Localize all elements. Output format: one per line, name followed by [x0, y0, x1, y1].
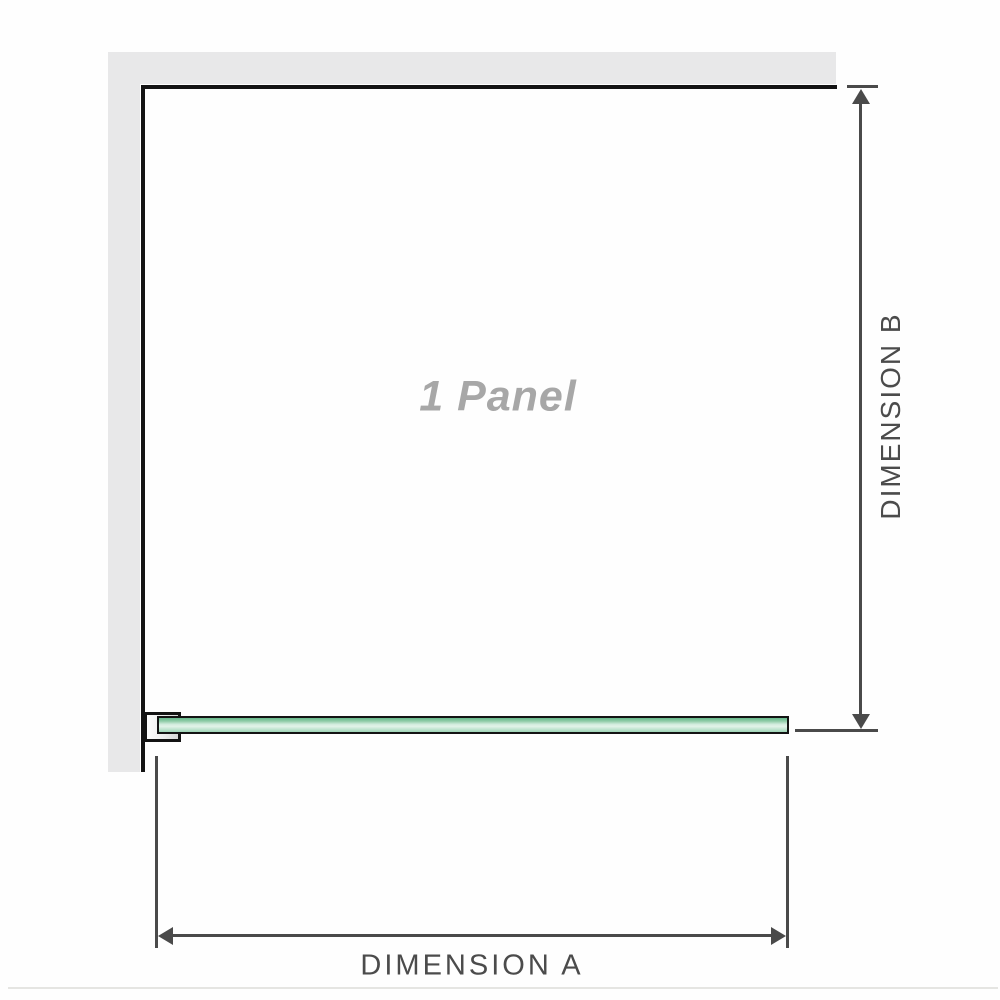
dimension-b-tick-top	[847, 85, 878, 88]
wall-inner-edge-left	[141, 85, 145, 772]
wall-top-band	[108, 52, 836, 84]
bottom-divider	[8, 987, 998, 989]
dimension-a-label: DIMENSION A	[360, 950, 583, 983]
arrow-down-icon	[852, 714, 870, 729]
wall-left-band	[108, 52, 140, 772]
dimension-b-line	[859, 100, 862, 716]
panel-dimension-diagram: 1 Panel DIMENSION B DIMENSION A	[0, 0, 1000, 1000]
panel-count-label: 1 Panel	[419, 373, 577, 422]
wall-inner-edge-top	[141, 85, 837, 89]
dimension-a-extension-right	[786, 756, 789, 948]
dimension-a-line	[170, 934, 775, 937]
dimension-a-extension-left	[155, 756, 158, 948]
dimension-b-tick-bottom	[795, 729, 878, 732]
glass-panel	[157, 716, 789, 734]
arrow-right-icon	[771, 927, 786, 945]
dimension-b-label: DIMENSION B	[875, 312, 907, 519]
